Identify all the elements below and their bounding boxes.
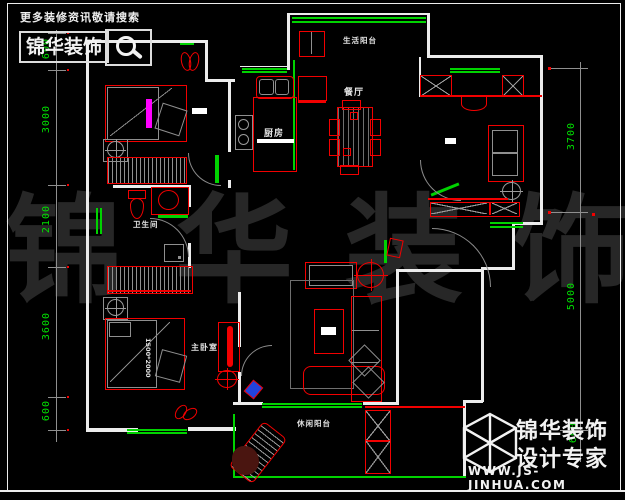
pillow-highlight <box>146 99 152 128</box>
bed-size-label: 1500*2000 <box>144 338 152 378</box>
wall-segment <box>86 40 89 430</box>
window-line <box>96 208 98 234</box>
window-line <box>450 68 500 70</box>
ceiling-fan-icon <box>107 141 124 158</box>
room-label-balcony-top: 生活阳台 <box>343 35 377 46</box>
window-line <box>450 71 500 73</box>
dim-tick <box>550 212 588 213</box>
dim-text: 5000 <box>566 282 577 310</box>
header-brand-text: 锦华装饰 <box>21 33 107 61</box>
ceiling-lamp-icon <box>217 370 237 388</box>
frame-line <box>7 3 621 4</box>
dining-chair <box>370 119 381 136</box>
dim-dot <box>67 184 69 186</box>
dim-tick <box>550 68 588 69</box>
wall-segment <box>188 427 236 431</box>
cabinet-divider <box>489 202 491 215</box>
wall-segment <box>238 372 241 405</box>
dim-dot <box>67 266 69 268</box>
footer-website: WWW.JS-JINHUA.COM <box>468 464 625 492</box>
decor-item <box>244 380 264 400</box>
sofa-cushion <box>492 153 518 176</box>
radiator-squiggle <box>187 51 201 72</box>
dim-text: 3700 <box>566 122 577 150</box>
window-line <box>180 43 194 45</box>
door-arc <box>432 228 491 287</box>
frame-line <box>620 3 621 491</box>
room-label-master-bedroom: 主卧室 <box>191 342 218 353</box>
dim-dot <box>548 67 551 70</box>
dining-chair <box>370 139 381 156</box>
burner-icon <box>238 134 249 145</box>
wall-segment <box>363 402 399 405</box>
balcony-rail-line <box>234 476 466 478</box>
room-label-bathroom: 卫生间 <box>133 219 159 230</box>
door-leaf <box>490 222 523 224</box>
window-line <box>127 432 187 434</box>
search-icon-handle <box>131 49 143 60</box>
window-line <box>292 17 426 19</box>
wall-segment <box>287 13 430 15</box>
dim-text: 600 <box>41 400 52 421</box>
burner-icon <box>238 119 249 130</box>
fridge <box>298 76 327 101</box>
red-wall-line <box>428 198 508 200</box>
header-tagline: 更多装修资讯敬请搜索 <box>20 9 140 25</box>
dim-dot <box>548 211 551 214</box>
wall-segment <box>240 66 290 67</box>
table-marker <box>321 327 336 335</box>
window-line <box>127 429 187 431</box>
sink-basin <box>275 79 289 95</box>
window-line <box>100 208 102 234</box>
header-search-box <box>105 29 152 66</box>
header-brand-box: 锦华装饰 <box>19 31 109 63</box>
window-line <box>262 406 362 408</box>
wall-marker <box>445 138 456 144</box>
hall-cabinet-x <box>431 203 487 214</box>
balcony-cabinet-x <box>365 410 391 442</box>
dining-chair <box>340 165 359 175</box>
drain-dot <box>178 256 181 259</box>
frame-line <box>7 3 8 491</box>
room-label-leisure-balcony: 休闲阳台 <box>297 418 331 429</box>
wall-marker <box>192 108 207 114</box>
red-wall-line <box>365 406 465 408</box>
dimension-line <box>580 62 581 462</box>
counter-marker <box>257 139 294 143</box>
shower-drain <box>164 244 184 262</box>
washing-machine <box>299 31 325 57</box>
wall-segment <box>228 90 231 152</box>
hall-cabinet-x <box>492 203 517 214</box>
dim-dot <box>67 69 69 71</box>
dim-tick <box>48 70 66 71</box>
wall-segment <box>396 269 399 405</box>
dim-tick <box>48 430 66 431</box>
wall-segment <box>427 55 543 58</box>
window-line <box>242 68 287 70</box>
dim-text: 3000 <box>41 105 52 133</box>
dim-text: 3600 <box>41 312 52 340</box>
dim-tick <box>48 185 66 186</box>
dining-chair <box>342 100 361 110</box>
wall-segment <box>512 222 515 270</box>
wall-segment <box>287 13 290 70</box>
sofa-seam <box>352 330 379 331</box>
window-line <box>292 21 426 23</box>
floorplan-canvas: 锦 华 装 饰 <box>0 0 625 500</box>
cabinet-x <box>502 75 524 97</box>
wall-segment <box>481 267 484 402</box>
cabinet-x <box>420 75 452 97</box>
red-wall-line <box>107 290 191 292</box>
dim-dot <box>67 429 69 431</box>
wall-segment <box>205 40 208 82</box>
wall-segment <box>540 55 543 225</box>
tv-screen <box>227 326 233 367</box>
window-line <box>242 71 287 73</box>
sofa-cushion <box>492 130 518 153</box>
wall-niche-arc <box>461 97 487 111</box>
dim-dot <box>67 396 69 398</box>
balcony-cabinet-x <box>365 440 391 474</box>
room-label-kitchen: 厨房 <box>264 126 284 139</box>
dining-chair <box>329 139 340 156</box>
wall-segment <box>427 13 430 57</box>
ceiling-fan-icon <box>107 299 124 316</box>
dim-dot <box>592 213 595 216</box>
dim-tick <box>48 397 66 398</box>
wall-segment <box>228 180 231 188</box>
dining-chair <box>329 119 340 136</box>
room-label-dining: 餐厅 <box>344 85 364 98</box>
dimension-line <box>56 30 57 442</box>
watermark-char: 锦 <box>5 192 123 310</box>
sink-basin <box>259 79 274 95</box>
door-leaf <box>490 226 523 228</box>
dim-tick <box>48 267 66 268</box>
toilet-bowl <box>130 198 144 219</box>
dim-text: 2100 <box>41 205 52 233</box>
ceiling-lamp-icon <box>357 262 384 288</box>
wash-basin <box>158 190 179 210</box>
table-item <box>343 148 351 156</box>
wardrobe <box>107 157 187 184</box>
table-item <box>350 112 358 120</box>
plant <box>232 446 259 475</box>
washing-machine-line <box>311 32 312 54</box>
door-arc <box>241 345 272 376</box>
fridge-line <box>298 101 326 103</box>
window-line <box>262 403 362 405</box>
wall-segment <box>463 400 483 403</box>
